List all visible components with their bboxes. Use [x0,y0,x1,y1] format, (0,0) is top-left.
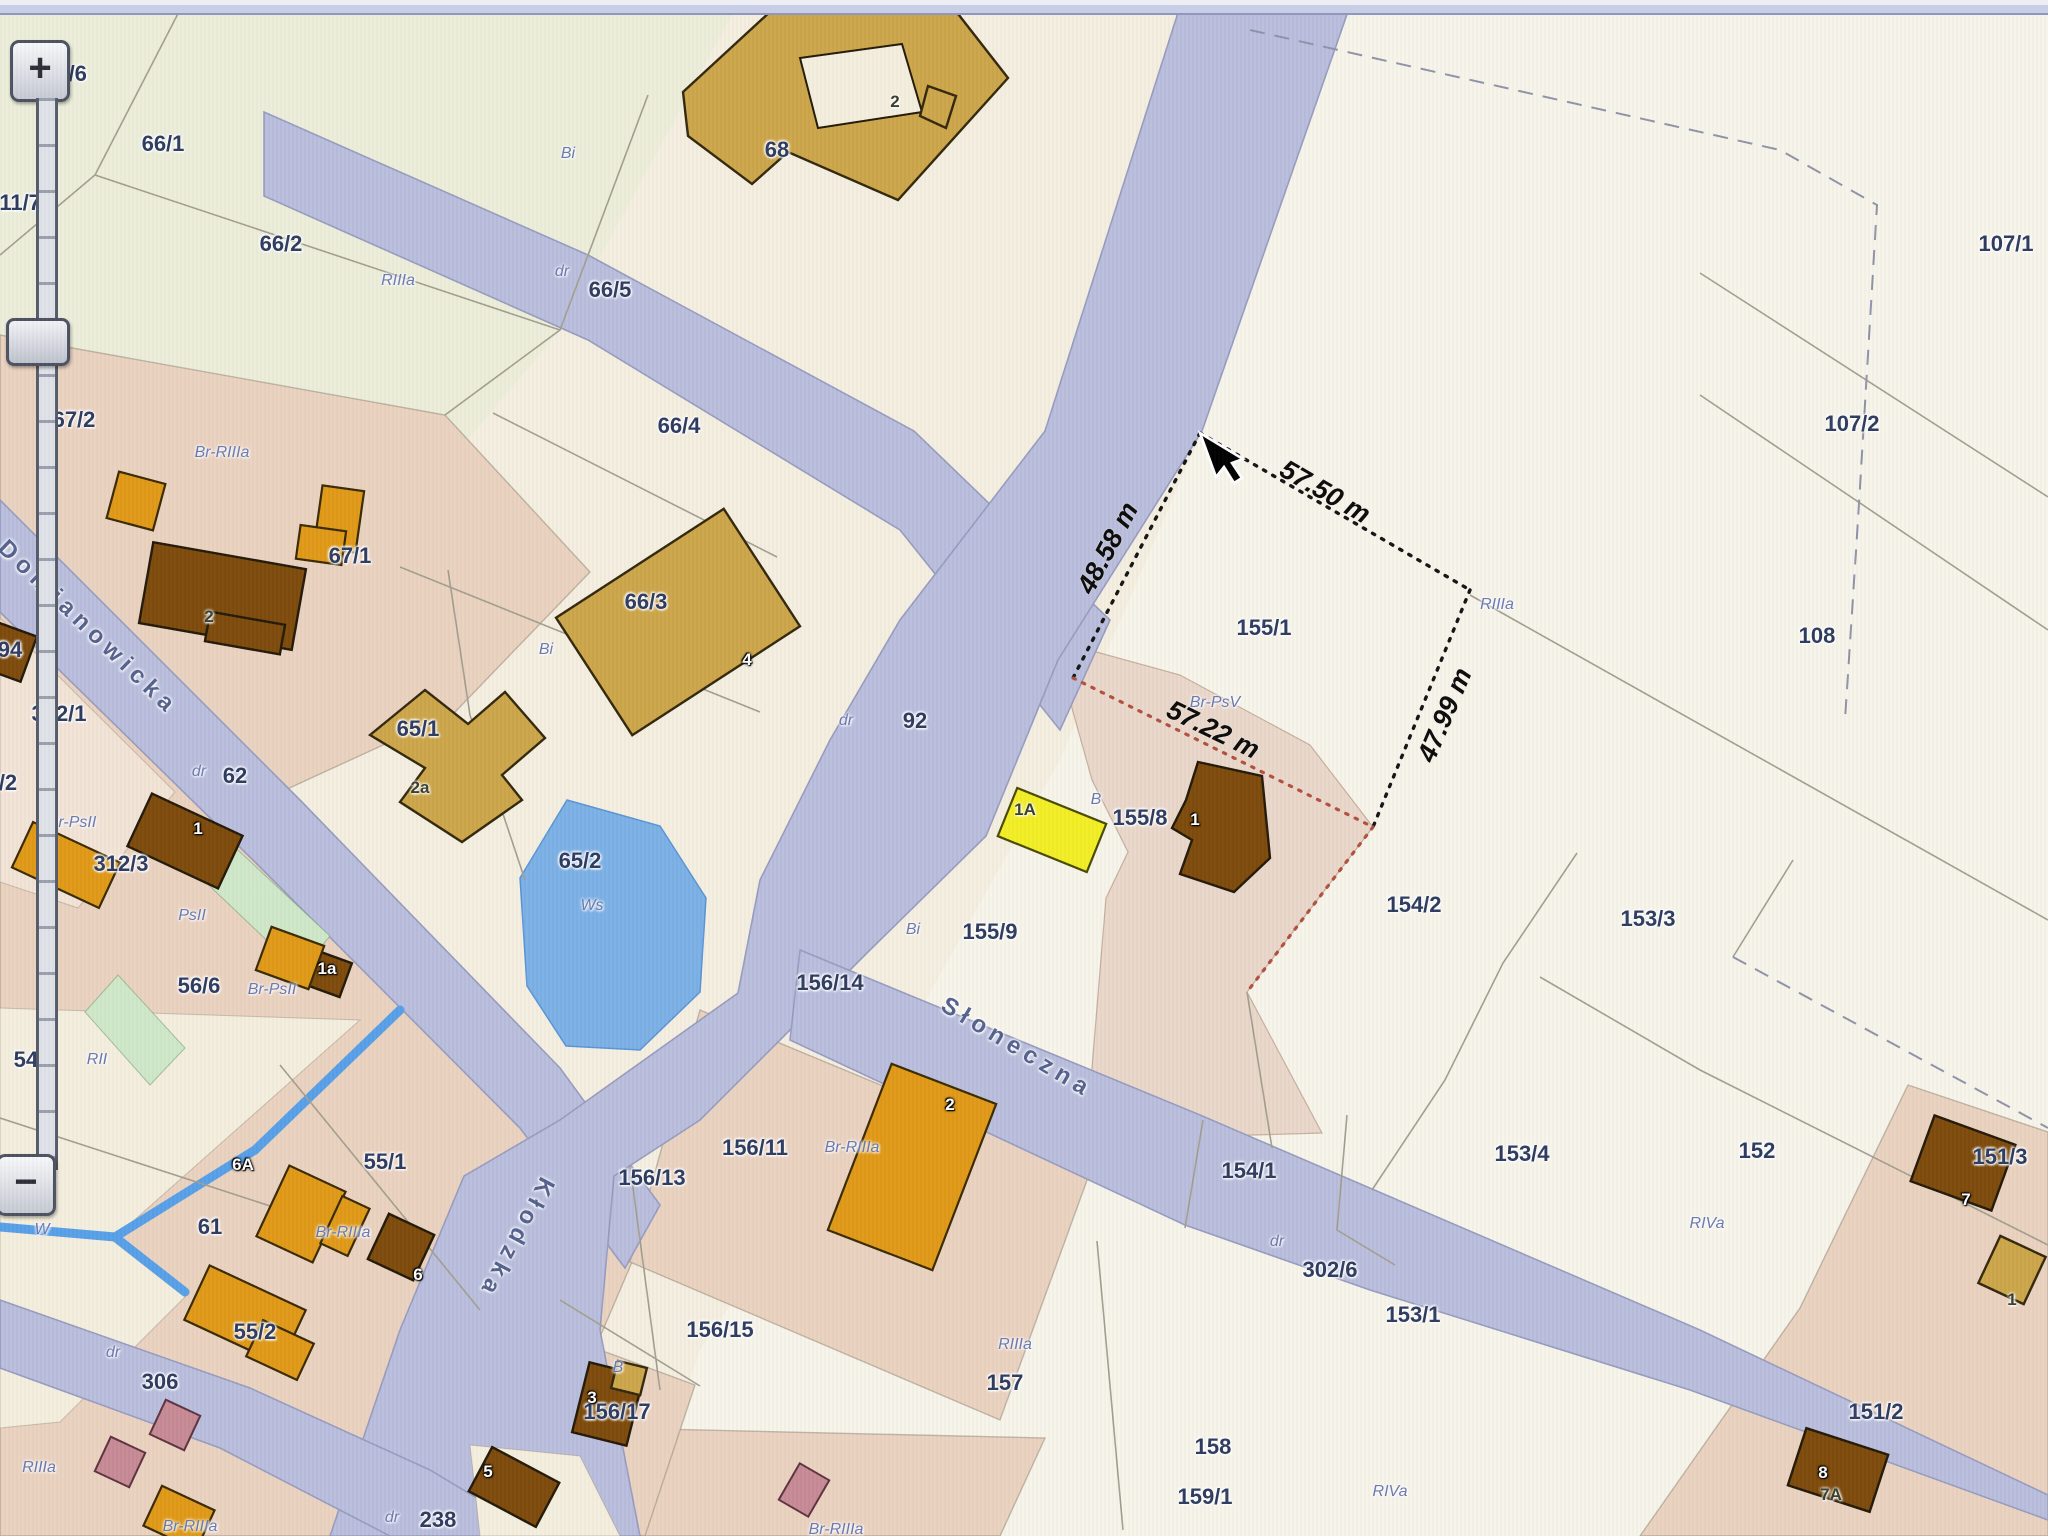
zoom-out-button[interactable]: − [0,1154,56,1216]
building-68-courtyard [800,44,922,128]
map-application: 311/6311/766/166/266/566/467/267/166/365… [0,0,2048,1536]
zoom-slider-track[interactable] [36,98,58,1170]
building [296,525,346,565]
map-viewport[interactable] [0,0,2048,1536]
screen-top-bezel [0,0,2048,15]
zoom-slider-handle[interactable] [6,318,70,366]
zoom-in-button[interactable]: + [10,40,70,102]
building [611,1361,647,1395]
zoom-control: + − [0,36,70,1226]
